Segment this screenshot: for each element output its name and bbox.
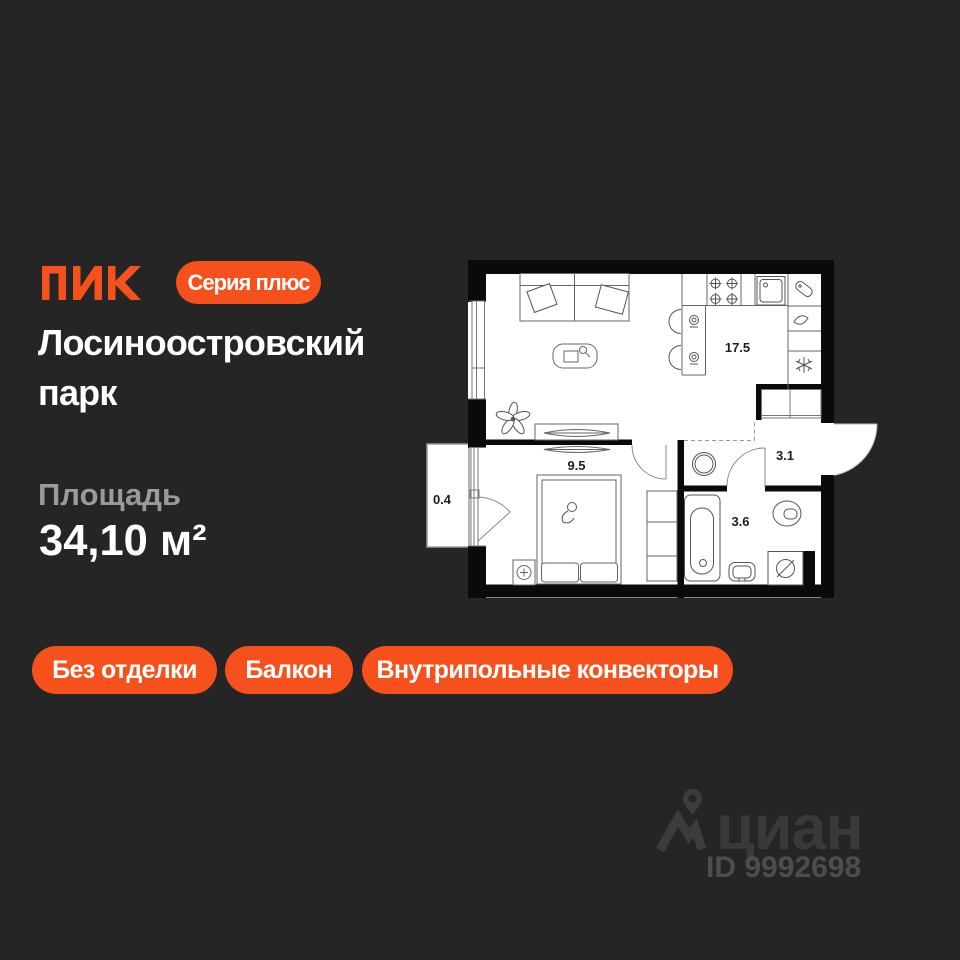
svg-text:3.1: 3.1 — [776, 448, 794, 463]
svg-text:17.5: 17.5 — [725, 340, 750, 355]
svg-text:3.6: 3.6 — [731, 514, 749, 529]
svg-text:0.4: 0.4 — [433, 492, 452, 507]
svg-text:9.5: 9.5 — [567, 458, 585, 473]
